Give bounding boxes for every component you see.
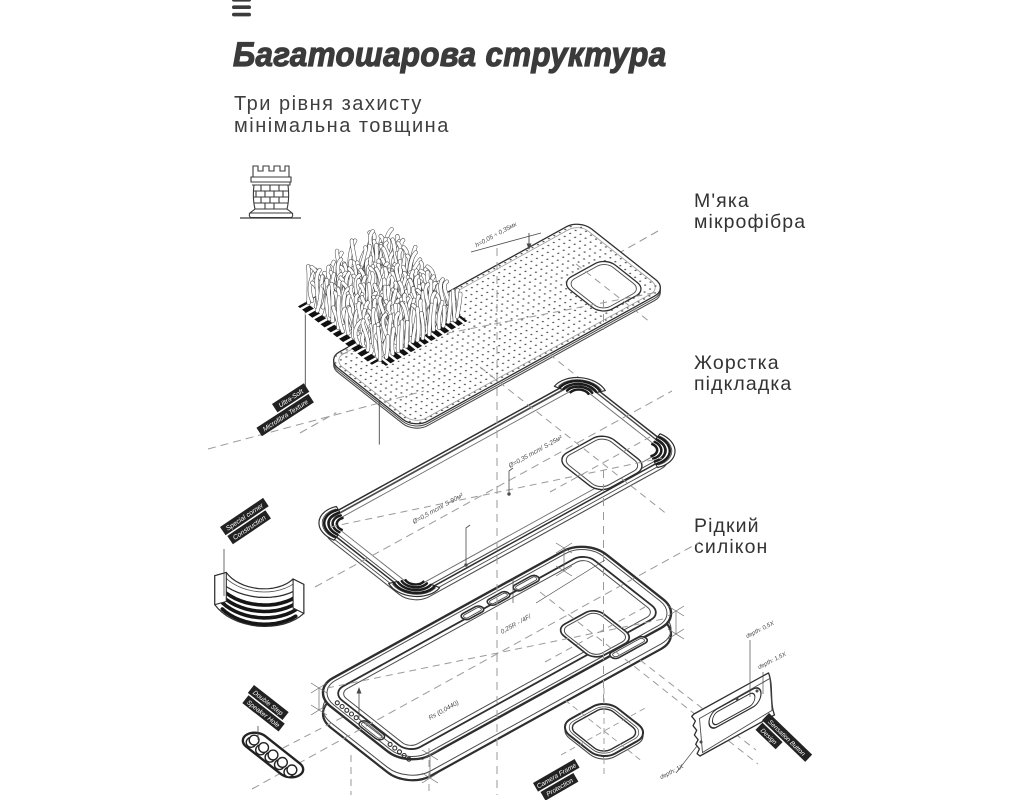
svg-text:depth: 1X: depth: 1X xyxy=(659,764,686,781)
svg-text:depth: 0,5X: depth: 0,5X xyxy=(745,620,776,640)
svg-text:depth: 1,5X: depth: 1,5X xyxy=(757,651,788,671)
